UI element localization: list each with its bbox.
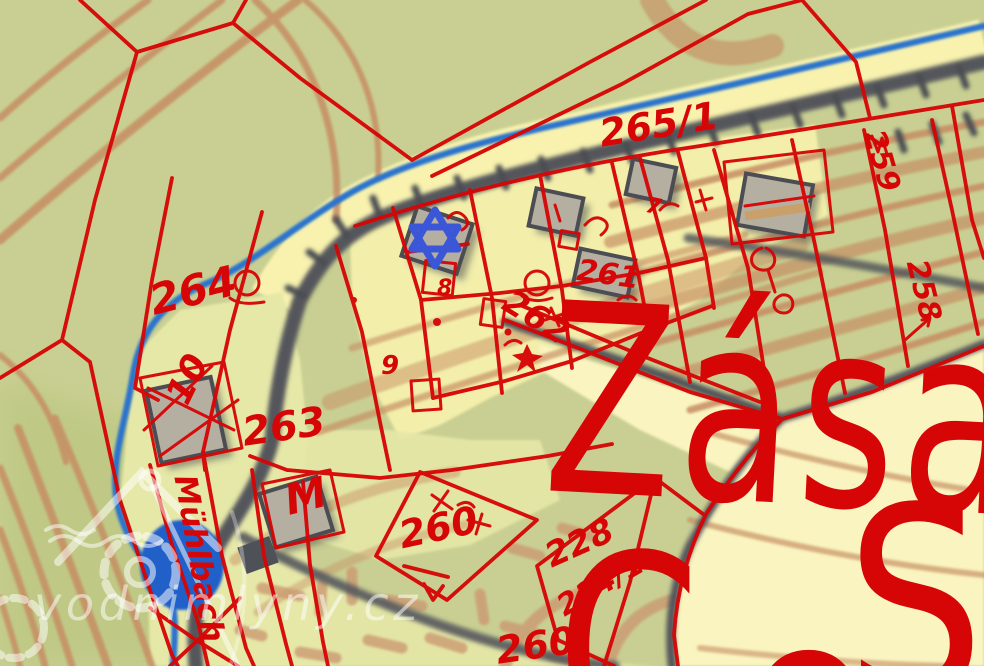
map-canvas [0,0,984,666]
map-root[interactable]: 265/1264263262261260260228214/125925810M… [0,0,984,666]
